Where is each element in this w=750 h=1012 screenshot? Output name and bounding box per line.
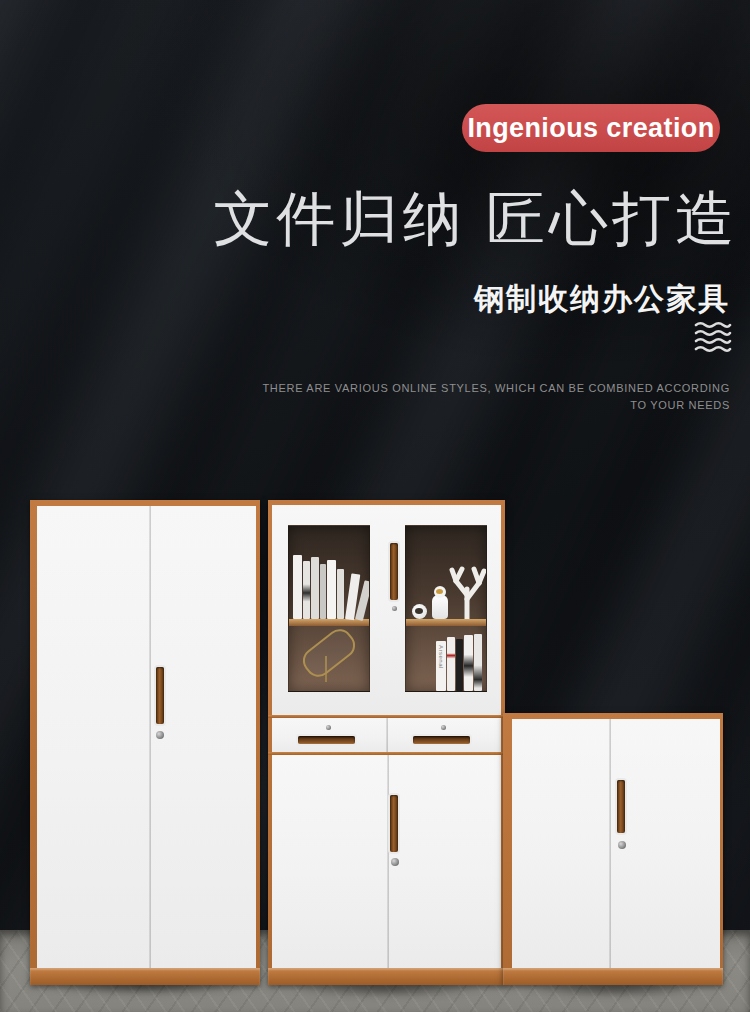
cabinet-doors (37, 506, 256, 968)
door-lock (391, 858, 399, 866)
glass-display-cabinet: Arsenal (268, 500, 505, 985)
wood-base (30, 968, 260, 985)
coral-ornament (448, 559, 486, 619)
glass-pane-left (288, 525, 370, 692)
tagline-line1: THERE ARE VARIOUS ONLINE STYLES, WHICH C… (250, 380, 730, 397)
door-seam (609, 719, 611, 968)
badge-label: Ingenious creation (467, 113, 714, 144)
drawer-lock (441, 725, 446, 730)
tagline: THERE ARE VARIOUS ONLINE STYLES, WHICH C… (250, 380, 730, 414)
tall-two-door-cabinet (30, 500, 260, 985)
book-spine (474, 634, 482, 691)
astronaut-figurine (432, 595, 448, 619)
book-row: Arsenal (436, 634, 483, 691)
tagline-line2: TO YOUR NEEDS (250, 397, 730, 414)
book-spine: Arsenal (436, 641, 446, 691)
wood-shelf (289, 619, 369, 626)
book-spine (293, 555, 302, 619)
door-handle (617, 780, 625, 833)
book-spine (337, 569, 344, 619)
book-spine (447, 637, 455, 691)
book-spine (303, 561, 310, 619)
door-handle (390, 795, 398, 852)
book-spine (464, 635, 473, 691)
cabinet-doors (512, 719, 720, 968)
badge-pill: Ingenious creation (462, 104, 720, 152)
glass-door-lock (392, 606, 397, 611)
book-spine (327, 560, 336, 619)
book-spine (456, 639, 463, 691)
book-label: Arsenal (438, 645, 444, 669)
promo-banner: Ingenious creation 文件归纳 匠心打造 钢制收纳办公家具 TH… (0, 0, 750, 1012)
book-spine (311, 557, 319, 619)
main-title: 文件归纳 匠心打造 (214, 180, 738, 260)
book-spine (320, 564, 326, 619)
astronaut-figurine-head (434, 586, 446, 598)
subtitle: 钢制收纳办公家具 (474, 279, 730, 320)
glass-pane-right: Arsenal (405, 525, 487, 692)
door-lock (618, 841, 626, 849)
wood-base (503, 968, 723, 985)
door-handle (156, 667, 164, 724)
brass-ornament (298, 624, 361, 682)
wood-base (268, 968, 505, 985)
door-seam (149, 506, 151, 968)
drawer-handle (413, 736, 470, 744)
wood-shelf (406, 619, 486, 626)
door-lock (156, 731, 164, 739)
drawer-seam (386, 718, 388, 752)
low-two-door-cabinet (503, 713, 723, 985)
astronaut-helmet-figurine (412, 604, 427, 619)
glass-door-handle (390, 543, 398, 600)
drawer-handle (298, 736, 355, 744)
door-seam (387, 755, 389, 968)
waves-icon (694, 321, 732, 353)
drawer-lock (326, 725, 331, 730)
book-row (293, 552, 364, 619)
